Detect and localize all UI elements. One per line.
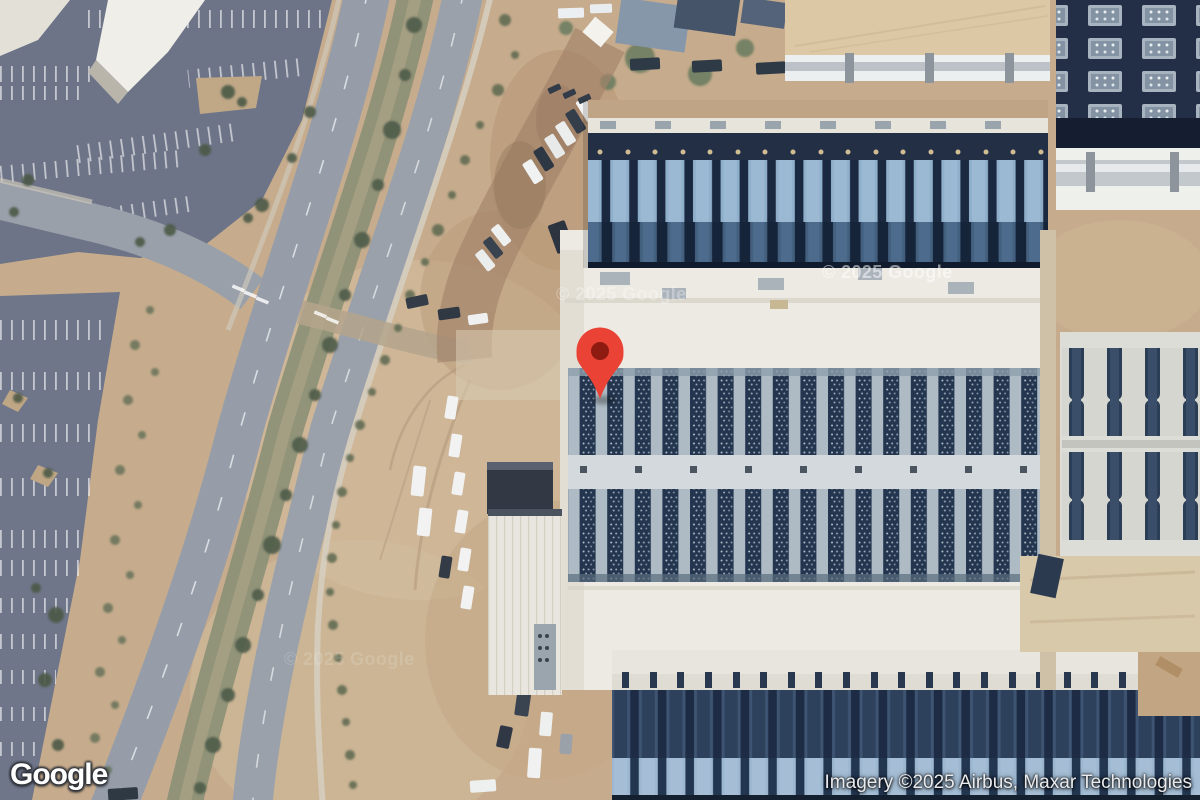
satellite-imagery [0,0,1200,800]
data-center-main-building [487,230,1052,695]
map-canvas[interactable]: © 2025 Google © 2025 Google © 2025 Googl… [0,0,1200,800]
google-logo[interactable]: Google [10,758,107,792]
imagery-attribution: Imagery ©2025 Airbus, Maxar Technologies [825,772,1192,794]
